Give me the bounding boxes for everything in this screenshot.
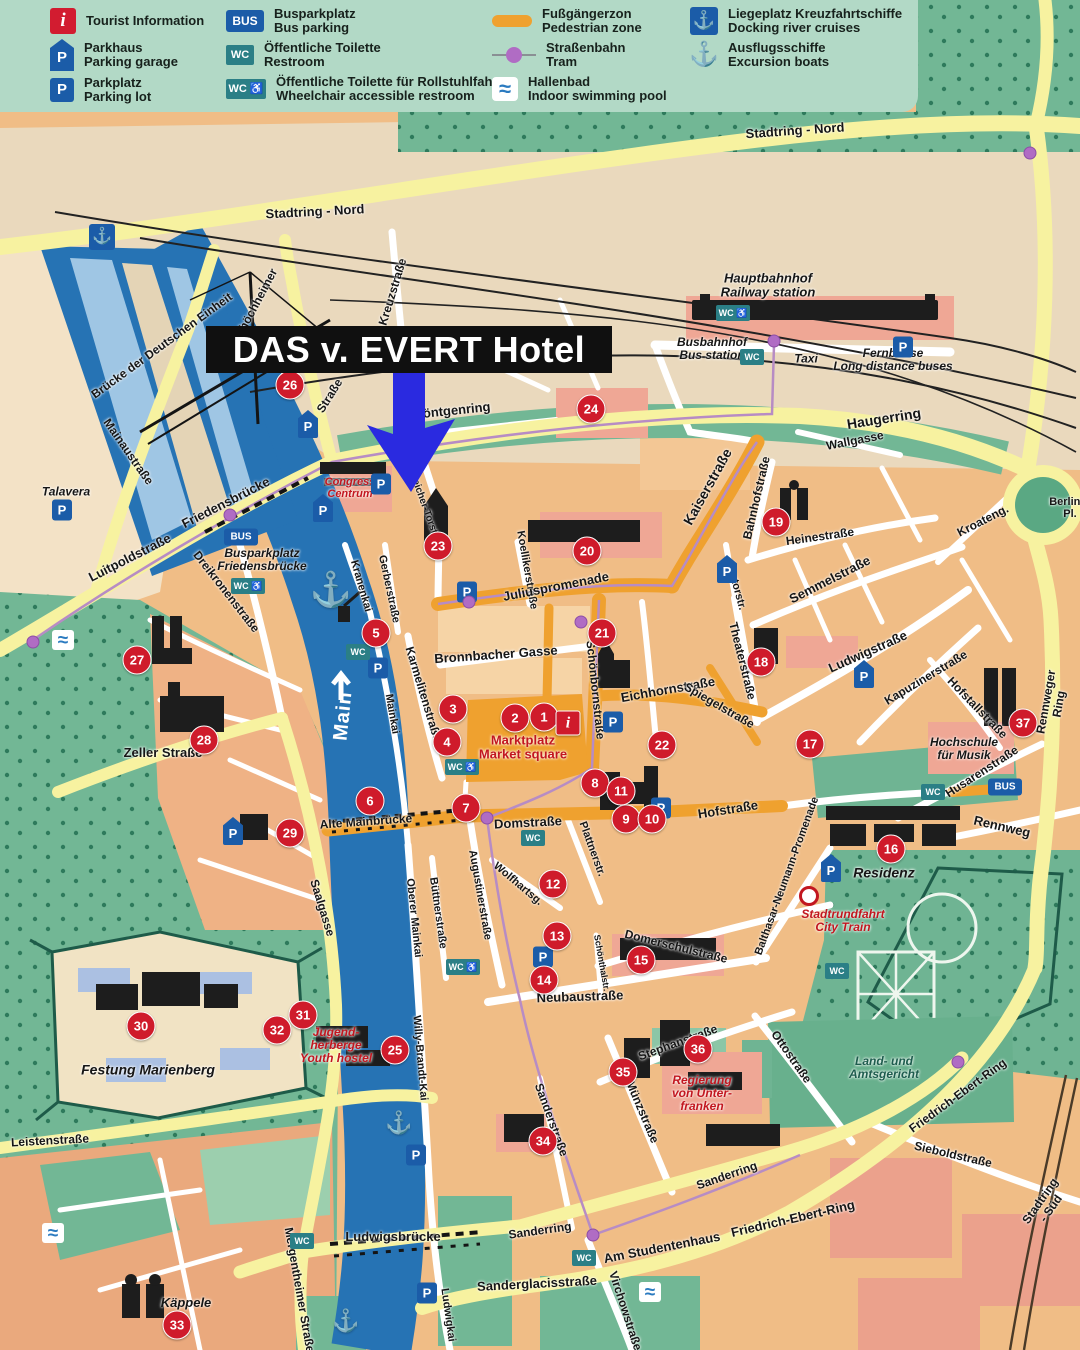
poi-marker-4[interactable]: 4	[433, 728, 462, 757]
bus-parking-badge: BUS	[988, 779, 1022, 796]
parking-badge: P	[417, 1283, 437, 1304]
wc-badge: WC	[921, 784, 945, 800]
street-label-kaiserstraße: Kaiserstraße	[681, 446, 736, 528]
street-label-koellikerstraße: Koellikerstraße	[514, 530, 540, 610]
legend-item-liegeplatz-kreuzfahrtschiffe: ⚓Liegeplatz KreuzfahrtschiffeDocking riv…	[690, 5, 902, 36]
legend-item-tourist-information: iTourist Information	[50, 5, 204, 36]
street-label-schönthalstr: Schönthalstr.	[591, 934, 611, 992]
legend-label-de: Öffentliche Toilette	[264, 41, 381, 55]
poi-marker-1[interactable]: 1	[530, 703, 559, 732]
parking-badge: P	[371, 474, 391, 495]
anchor-badge-icon: ⚓	[690, 7, 718, 35]
bus-parking-badge: BUS	[224, 529, 258, 546]
legend-label-en: Indoor swimming pool	[528, 89, 667, 103]
wc-icon: WC	[226, 45, 254, 65]
street-label-leistenstraße: Leistenstraße	[11, 1132, 90, 1149]
parking-badge: P	[52, 500, 72, 521]
street-label-busparkplatz-friedensbrücke: Busparkplatz Friedensbrücke	[217, 547, 306, 573]
poi-marker-15[interactable]: 15	[627, 946, 656, 975]
poi-marker-29[interactable]: 29	[276, 819, 305, 848]
wc-accessible-badge: WC ♿	[716, 305, 750, 321]
parking-badge: P	[533, 947, 553, 968]
info-icon: i	[50, 8, 76, 34]
legend-item-label: Öffentliche Toilette für Rollstuhlfahrer…	[276, 75, 510, 103]
hotel-name-banner: DAS v. EVERT Hotel	[206, 326, 612, 373]
street-label-kroateng: Kroateng.	[955, 502, 1011, 539]
poi-marker-14[interactable]: 14	[530, 966, 559, 995]
legend-item-fußgängerzon: FußgängerzonPedestrian zone	[492, 5, 667, 36]
hotel-name-label: DAS v. EVERT Hotel	[233, 329, 585, 371]
street-label-hofstraße: Hofstraße	[697, 798, 759, 822]
tram-stop-dot	[1024, 147, 1037, 160]
wc-badge: WC	[825, 963, 849, 979]
legend-label-de: Straßenbahn	[546, 41, 625, 55]
legend-item-label: StraßenbahnTram	[546, 41, 625, 69]
street-label-berliner-pl: Berliner Pl.	[1049, 496, 1080, 520]
street-label-bronnbacher-gasse: Bronnbacher Gasse	[434, 644, 558, 667]
anchor-icon: ⚓	[310, 573, 352, 607]
wc-badge: WC	[290, 1233, 314, 1249]
poi-marker-33[interactable]: 33	[163, 1311, 192, 1340]
legend-label-de: Parkhaus	[84, 41, 178, 55]
street-label-wallgasse: Wallgasse	[825, 429, 885, 453]
street-label-pleicher-torstr: Pleicher-Torstr.	[406, 469, 441, 541]
street-label-hofstallstraße: Hofstallstraße	[944, 675, 1009, 742]
legend-item-label: Tourist Information	[86, 14, 204, 28]
poi-marker-26[interactable]: 26	[276, 371, 305, 400]
legend-label-en: Parking lot	[84, 90, 151, 104]
parking-garage-badge: P	[223, 817, 243, 845]
legend-item-hallenbad: ≈HallenbadIndoor swimming pool	[492, 73, 667, 104]
street-label-juliuspromenade: Juliuspromenade	[502, 570, 610, 605]
legend-item-öffentliche-toilette: WCÖffentliche ToiletteRestroom	[226, 39, 510, 70]
tram-stop-dot	[224, 509, 237, 522]
legend-item-busparkplatz: BUSBusparkplatzBus parking	[226, 5, 510, 36]
street-label-plattnerstr: Plattnerstr.	[576, 820, 607, 878]
street-label-sieboldstraße: Sieboldstraße	[913, 1140, 993, 1171]
street-label-kreuzstraße: Kreuzstraße	[377, 257, 410, 327]
legend-label-de: Liegeplatz Kreuzfahrtschiffe	[728, 7, 902, 21]
anchor-icon: ⚓	[690, 41, 718, 69]
street-label-straße: Straße	[315, 377, 346, 416]
legend-item-öffentliche-toilette-für-rollstu: WC ♿Öffentliche Toilette für Rollstuhlfa…	[226, 73, 510, 104]
parking-garage-badge: P	[717, 555, 737, 583]
poi-marker-20[interactable]: 20	[573, 537, 602, 566]
street-label-residenz: Residenz	[853, 865, 914, 880]
street-label-eichhornstraße: Eichhornstraße	[620, 675, 716, 706]
street-label-käppele: Käppele	[161, 1296, 212, 1310]
parking-badge: P	[893, 337, 913, 358]
wc-accessible-badge: WC ♿	[445, 759, 479, 775]
wc-badge: WC	[572, 1250, 596, 1266]
wc-badge: WC	[740, 349, 764, 365]
poi-marker-28[interactable]: 28	[190, 726, 219, 755]
street-label-gerberstraße: Gerberstraße	[376, 554, 402, 624]
city-train-stop	[799, 886, 819, 906]
swimming-pool-icon: ≈	[42, 1223, 64, 1243]
street-label-rennweger-ring: Rennweger Ring	[1034, 669, 1071, 737]
poi-marker-2[interactable]: 2	[501, 704, 530, 733]
tram-stop-dot	[27, 636, 40, 649]
legend-item-label: BusparkplatzBus parking	[274, 7, 356, 35]
swimming-pool-icon: ≈	[639, 1282, 661, 1302]
legend-item-label: Öffentliche ToiletteRestroom	[264, 41, 381, 69]
poi-marker-30[interactable]: 30	[127, 1012, 156, 1041]
street-label-wolfhartsg: Wolfhartsg.	[491, 860, 545, 908]
poi-marker-35[interactable]: 35	[609, 1058, 638, 1087]
legend-label-en: Excursion boats	[728, 55, 829, 69]
street-label-congress-centrum: Congress Centrum	[325, 476, 376, 500]
poi-marker-31[interactable]: 31	[289, 1001, 318, 1030]
poi-marker-10[interactable]: 10	[638, 805, 667, 834]
street-label-land-und-amtsgericht: Land- und Amtsgericht	[849, 1055, 919, 1081]
legend-item-ausflugsschiffe: ⚓AusflugsschiffeExcursion boats	[690, 39, 902, 70]
street-label-regierung-von-unter-franken: Regierung von Unter- franken	[672, 1074, 732, 1114]
parking-badge: P	[603, 712, 623, 733]
legend-column: FußgängerzonPedestrian zoneStraßenbahnTr…	[492, 5, 667, 104]
street-label-friedensbrücke: Friedensbrücke	[180, 475, 273, 532]
tram-stop-dot	[575, 616, 588, 629]
street-label-kapuzinerstraße: Kapuzinerstraße	[882, 648, 969, 708]
legend-item-straßenbahn: StraßenbahnTram	[492, 39, 667, 70]
bus-icon: BUS	[226, 10, 264, 32]
parking-garage-badge: P	[313, 494, 333, 522]
parking-badge: P	[368, 658, 388, 679]
legend-label-de: Hallenbad	[528, 75, 667, 89]
street-label-festung-marienberg: Festung Marienberg	[81, 1062, 215, 1077]
street-label-luitpoldstraße: Luitpoldstraße	[87, 531, 174, 585]
poi-marker-6[interactable]: 6	[356, 787, 385, 816]
poi-marker-36[interactable]: 36	[684, 1035, 713, 1064]
poi-marker-23[interactable]: 23	[424, 532, 453, 561]
street-label-zeller-straße: Zeller Straße	[124, 746, 203, 760]
poi-marker-16[interactable]: 16	[877, 835, 906, 864]
poi-marker-22[interactable]: 22	[648, 731, 677, 760]
poi-marker-32[interactable]: 32	[263, 1016, 292, 1045]
street-label-busbahnhof-bus-station: Busbahnhof Bus station	[677, 336, 747, 362]
legend-label-de: Fußgängerzon	[542, 7, 642, 21]
parking-garage-badge: P	[854, 660, 874, 688]
legend-item-parkhaus: PParkhausParking garage	[50, 39, 204, 71]
street-label-sanderring: Sanderring	[508, 1220, 573, 1242]
anchor-icon: ⚓	[385, 1112, 412, 1134]
street-label-ludwigsbrücke: Ludwigsbrücke	[345, 1230, 440, 1244]
pedzone-icon	[492, 15, 532, 27]
poi-marker-7[interactable]: 7	[452, 794, 481, 823]
street-label-am-studentenhaus: Am Studentenhaus	[602, 1230, 721, 1267]
dock-anchor-badge: ⚓	[89, 224, 115, 250]
street-label-augustinerstraße: Augustinerstraße	[466, 849, 494, 941]
street-label-münzstraße: Münzstraße	[623, 1079, 661, 1146]
street-label-balthasar-neumann-promenade: Balthasar-Neumann-Promenade	[753, 795, 822, 957]
legend-item-parkplatz: PParkplatzParking lot	[50, 74, 204, 105]
street-label-sanderring: Sanderring	[695, 1159, 759, 1192]
tourist-info-marker[interactable]: i	[556, 711, 581, 736]
legend-label-en: Restroom	[264, 55, 381, 69]
street-label-main: Main	[329, 690, 356, 742]
street-label-mainkai: Mainkai	[383, 693, 402, 735]
street-label-stadtring-nord: Stadtring - Nord	[745, 120, 845, 141]
poi-marker-24[interactable]: 24	[577, 395, 606, 424]
street-label-hochschule-für-musik: Hochschule für Musik	[930, 736, 998, 762]
street-label-friedrich-ebert-ring: Friedrich-Ebert-Ring	[730, 1198, 856, 1240]
poi-marker-34[interactable]: 34	[529, 1127, 558, 1156]
map-legend: iTourist InformationPParkhausParking gar…	[0, 0, 918, 112]
street-label-stadtring-nord: Stadtring - Nord	[265, 202, 365, 221]
legend-label-en: Bus parking	[274, 21, 356, 35]
street-label-marktplatz-market-square: Marktplatz Market square	[479, 734, 567, 763]
poi-marker-5[interactable]: 5	[362, 619, 391, 648]
street-label-willy-brandt-kai: Willy-Brandt-Kai	[410, 1015, 429, 1101]
street-label-talavera: Talavera	[42, 485, 90, 498]
tram-stop-dot	[481, 812, 494, 825]
poi-marker-18[interactable]: 18	[747, 648, 776, 677]
legend-item-label: Liegeplatz KreuzfahrtschiffeDocking rive…	[728, 7, 902, 35]
legend-item-label: ParkhausParking garage	[84, 41, 178, 69]
legend-label-de: Ausflugsschiffe	[728, 41, 829, 55]
parking-badge: P	[406, 1145, 426, 1166]
legend-label-de: Parkplatz	[84, 76, 151, 90]
tram-icon	[492, 45, 536, 65]
p-shield-icon: P	[50, 39, 74, 71]
street-label-oberer-mainkai: Oberer Mainkai	[404, 878, 424, 958]
legend-item-label: AusflugsschiffeExcursion boats	[728, 41, 829, 69]
wc-accessible-badge: WC ♿	[446, 959, 480, 975]
street-label-rennweg: Rennweg	[972, 814, 1032, 841]
legend-label-en: Wheelchair accessible restroom	[276, 89, 510, 103]
street-label-haugerring: Haugerring	[846, 406, 922, 433]
swimming-pool-icon: ≈	[52, 630, 74, 650]
legend-label-de: Öffentliche Toilette für Rollstuhlfahrer	[276, 75, 510, 89]
legend-label-en: Tram	[546, 55, 625, 69]
poi-marker-21[interactable]: 21	[588, 619, 617, 648]
street-label-röntgenring: Röntgenring	[413, 400, 491, 422]
poi-marker-25[interactable]: 25	[381, 1036, 410, 1065]
parking-garage-badge: P	[821, 854, 841, 882]
street-label-saalgasse: Saalgasse	[307, 878, 337, 938]
tram-stop-dot	[952, 1056, 965, 1069]
wc-accessible-badge: WC ♿	[231, 578, 265, 594]
street-label-stadtrundfahrt-city-train: Stadtrundfahrt City Train	[801, 908, 884, 934]
legend-item-label: HallenbadIndoor swimming pool	[528, 75, 667, 103]
wuerzburg-city-map: Stadtring - NordStadtring - NordHauptbah…	[0, 0, 1080, 1350]
legend-label-en: Parking garage	[84, 55, 178, 69]
poi-marker-13[interactable]: 13	[543, 922, 572, 951]
street-label-spiegelstraße: Spiegelstraße	[682, 681, 757, 732]
pool-icon: ≈	[492, 77, 518, 101]
street-label-mainaustraße: Mainaustraße	[100, 417, 155, 488]
street-label-stadtring-süd: Stadtring - Süd	[1020, 1176, 1072, 1234]
street-label-karmelitenstraße: Karmelitenstraße	[402, 645, 443, 743]
tram-stop-dot	[587, 1229, 600, 1242]
street-label-büttnerstraße: Büttnerstraße	[427, 876, 449, 949]
street-label-semmelstraße: Semmelstraße	[787, 553, 873, 606]
poi-marker-11[interactable]: 11	[607, 777, 636, 806]
legend-label-de: Busparkplatz	[274, 7, 356, 21]
map-labels-layer: Stadtring - NordStadtring - NordHauptbah…	[0, 0, 1080, 1350]
street-label-ludwigkai: Ludwigkai	[438, 1288, 457, 1343]
street-label-hauptbahnhof-railway-station: Hauptbahnhof Railway station	[721, 272, 816, 301]
street-label-heinestraße: Heinestraße	[785, 526, 855, 549]
poi-marker-8[interactable]: 8	[581, 769, 610, 798]
legend-label-en: Docking river cruises	[728, 21, 902, 35]
poi-marker-17[interactable]: 17	[796, 730, 825, 759]
wc-badge: WC	[346, 644, 370, 660]
legend-column: iTourist InformationPParkhausParking gar…	[50, 5, 204, 105]
poi-marker-12[interactable]: 12	[539, 870, 568, 899]
poi-marker-37[interactable]: 37	[1009, 709, 1038, 738]
street-label-ottostraße: Ottostraße	[768, 1028, 814, 1085]
wc-badge: WC	[521, 830, 545, 846]
legend-item-label: ParkplatzParking lot	[84, 76, 151, 104]
p-square-icon: P	[50, 78, 74, 102]
street-label-virchowstraße: Virchowstraße	[606, 1270, 644, 1350]
poi-marker-9[interactable]: 9	[612, 805, 641, 834]
legend-column: ⚓Liegeplatz KreuzfahrtschiffeDocking riv…	[690, 5, 902, 70]
street-label-sanderglacisstraße: Sanderglacisstraße	[477, 1274, 598, 1295]
street-label-taxi: Taxi	[794, 352, 818, 365]
poi-marker-19[interactable]: 19	[762, 508, 791, 537]
poi-marker-3[interactable]: 3	[439, 695, 468, 724]
street-label-jugend-herberge-youth-hostel: Jugend- herberge Youth hostel	[300, 1026, 372, 1066]
wc-access-icon: WC ♿	[226, 79, 266, 99]
tram-stop-dot	[768, 335, 781, 348]
anchor-icon: ⚓	[332, 1310, 359, 1332]
legend-item-label: FußgängerzonPedestrian zone	[542, 7, 642, 35]
parking-garage-badge: P	[298, 410, 318, 438]
legend-column: BUSBusparkplatzBus parkingWCÖffentliche …	[226, 5, 510, 104]
tram-stop-dot	[463, 596, 476, 609]
poi-marker-27[interactable]: 27	[123, 646, 152, 675]
legend-label-en: Pedestrian zone	[542, 21, 642, 35]
legend-label-de: Tourist Information	[86, 14, 204, 28]
